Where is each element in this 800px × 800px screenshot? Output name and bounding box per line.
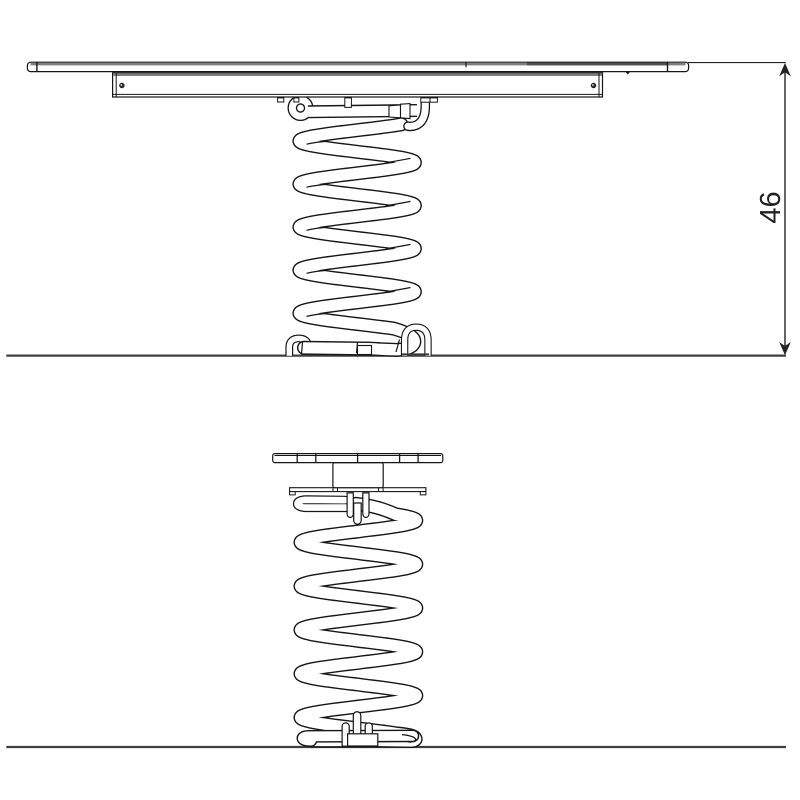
svg-text:46: 46 (755, 191, 787, 223)
